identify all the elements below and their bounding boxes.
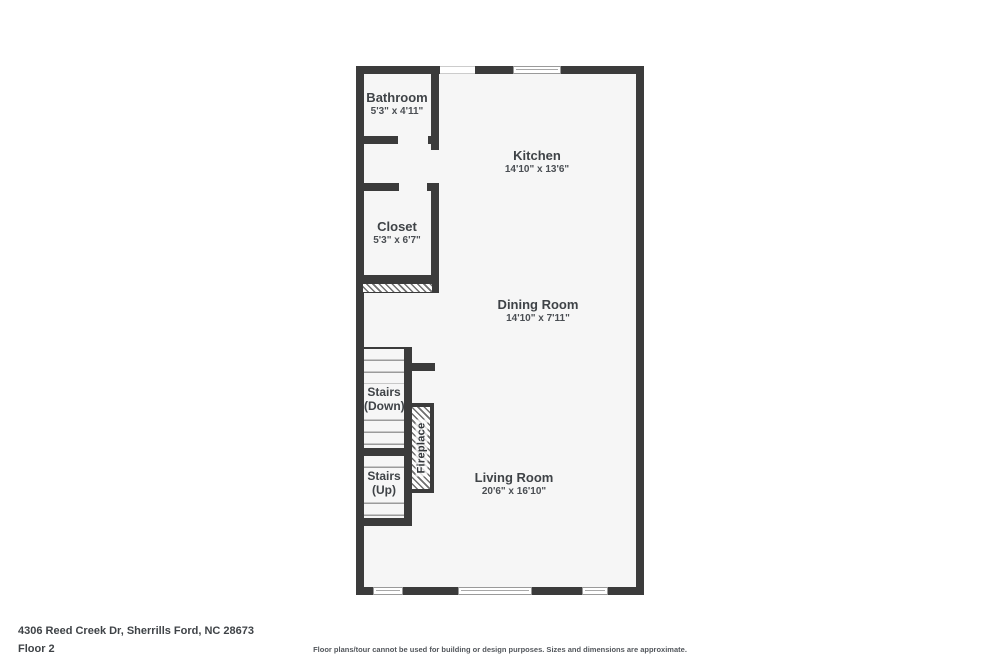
kitchen-name: Kitchen (505, 148, 569, 163)
stairs-divider-wall (356, 448, 412, 456)
living-dims: 20'6" x 16'10" (475, 486, 554, 497)
kitchen-window (513, 66, 561, 74)
stairs-landing-wall (412, 363, 435, 371)
room-label-closet: Closet 5'3" x 6'7" (373, 219, 421, 246)
dining-name: Dining Room (498, 297, 579, 312)
closet-bottom-wall (356, 275, 439, 283)
stairs-down-line1: Stairs (364, 385, 404, 399)
room-label-kitchen: Kitchen 14'10" x 13'6" (505, 148, 569, 175)
closet-dims: 5'3" x 6'7" (373, 235, 421, 246)
closet-top-wall (356, 183, 399, 191)
fireplace-label: Fireplace (415, 419, 427, 476)
room-label-living: Living Room 20'6" x 16'10" (475, 470, 554, 497)
bathroom-door-jamb (428, 136, 439, 144)
living-room-window-left (373, 587, 403, 595)
living-name: Living Room (475, 470, 554, 485)
floor-label: Floor 2 (18, 643, 55, 655)
stairs-down-line2: (Down) (364, 399, 404, 413)
room-label-bathroom: Bathroom 5'3" x 4'11" (366, 90, 427, 117)
stairs-bottom-wall (356, 518, 412, 526)
living-room-window-center (458, 587, 532, 595)
disclaimer-text: Floor plans/tour cannot be used for buil… (313, 645, 687, 654)
stairs-up-line2: (Up) (364, 483, 404, 497)
bathroom-dims: 5'3" x 4'11" (366, 106, 427, 117)
right-wall (636, 66, 644, 595)
closet-shelf-hatch (362, 283, 433, 293)
stairs-down-label: Stairs (Down) (364, 384, 404, 414)
fireplace: Fireplace (408, 403, 434, 493)
top-wall (356, 66, 644, 74)
stairs-up-line1: Stairs (364, 469, 404, 483)
floor-plan-page: { "plan": { "rooms": [ { "name": "Bathro… (0, 0, 1000, 666)
bathroom-bottom-wall (356, 136, 398, 144)
living-room-window-right (582, 587, 608, 595)
kitchen-dims: 14'10" x 13'6" (505, 164, 569, 175)
bathroom-name: Bathroom (366, 90, 427, 105)
property-address: 4306 Reed Creek Dr, Sherrills Ford, NC 2… (18, 625, 254, 637)
dining-dims: 14'10" x 7'11" (498, 313, 579, 324)
closet-name: Closet (373, 219, 421, 234)
floor-plan: Stairs (Down) Stairs (Up) Fireplace Bath… (356, 66, 644, 595)
stairs-up-label: Stairs (Up) (364, 468, 404, 498)
left-wall (356, 66, 364, 595)
kitchen-top-opening (440, 66, 475, 74)
room-label-dining: Dining Room 14'10" x 7'11" (498, 297, 579, 324)
